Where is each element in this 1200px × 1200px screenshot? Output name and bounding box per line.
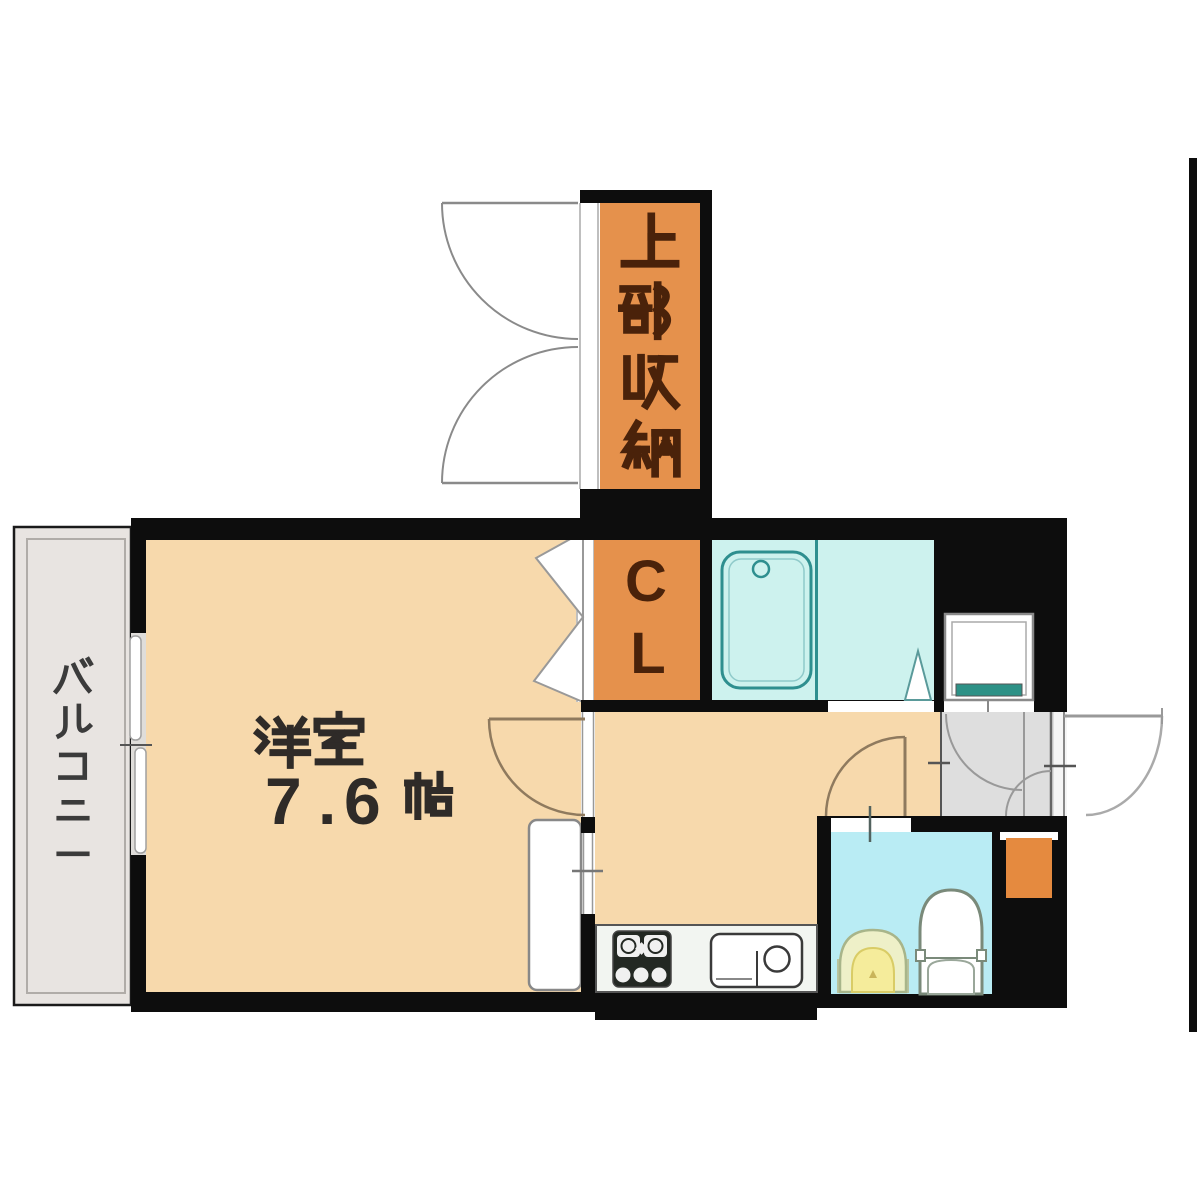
svg-text:L: L (630, 621, 665, 686)
svg-text:C: C (625, 549, 667, 614)
svg-text:7.6: 7.6 (265, 764, 381, 838)
